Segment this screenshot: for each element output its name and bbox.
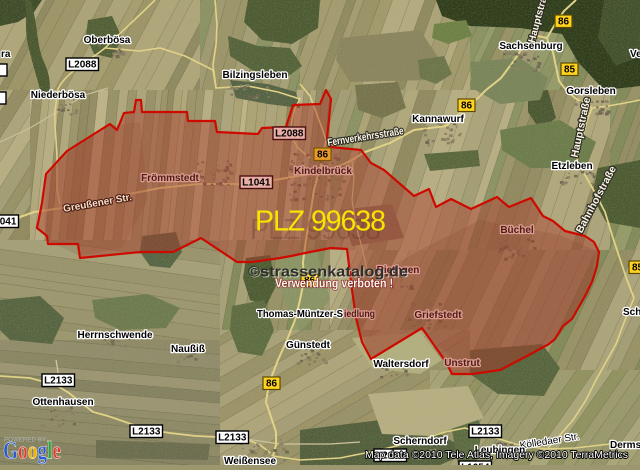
svg-text:Thomas-Müntzer-S: Thomas-Müntzer-S <box>257 309 343 320</box>
svg-text:ra: ra <box>1 49 11 60</box>
svg-text:86: 86 <box>461 101 473 112</box>
svg-text:Büchel: Büchel <box>500 225 534 236</box>
svg-text:Scherndorf: Scherndorf <box>393 436 447 447</box>
svg-text:L2133: L2133 <box>132 427 161 438</box>
svg-text:Unstrut: Unstrut <box>444 358 480 369</box>
svg-text:L2088: L2088 <box>275 129 304 140</box>
svg-text:Bilzingsleben: Bilzingsleben <box>223 70 288 81</box>
svg-text:Ottenhausen: Ottenhausen <box>32 397 93 408</box>
svg-text:86: 86 <box>266 379 278 390</box>
svg-text:Sachsenburg: Sachsenburg <box>499 41 562 52</box>
svg-text:L2133: L2133 <box>471 427 500 438</box>
svg-text:Frömmstedt: Frömmstedt <box>141 173 199 184</box>
svg-text:iedlung: iedlung <box>344 309 375 320</box>
svg-text:86: 86 <box>558 17 570 28</box>
svg-text:Map data ©2010 Tele Atlas, Ima: Map data ©2010 Tele Atlas, Imagery ©2010… <box>365 449 628 461</box>
svg-text:Schloßvippach: Schloßvippach <box>623 307 640 318</box>
svg-text:L1041: L1041 <box>242 178 271 189</box>
svg-text:Verwendung verboten !: Verwendung verboten ! <box>275 277 393 291</box>
svg-text:Waltersdorf: Waltersdorf <box>373 359 429 370</box>
svg-text:Kindelbrück: Kindelbrück <box>294 166 352 177</box>
svg-text:85: 85 <box>632 263 640 274</box>
svg-text:PLZ 99638: PLZ 99638 <box>255 206 386 238</box>
svg-text:Google: Google <box>3 438 61 465</box>
svg-text:L1041: L1041 <box>0 217 17 228</box>
svg-text:L2133: L2133 <box>218 433 247 444</box>
svg-text:86: 86 <box>317 150 329 161</box>
svg-text:Naußiß: Naußiß <box>171 344 205 355</box>
svg-text:Oberbösa: Oberbösa <box>84 35 131 46</box>
svg-text:Herrnschwende: Herrnschwende <box>77 330 152 341</box>
svg-text:Vehra: Vehra <box>630 49 640 60</box>
svg-text:L2133: L2133 <box>44 376 73 387</box>
svg-text:L2088: L2088 <box>68 60 97 71</box>
svg-text:Etzleben: Etzleben <box>551 161 592 172</box>
svg-text:Weißensee: Weißensee <box>224 456 276 465</box>
svg-text:Niederbösa: Niederbösa <box>31 90 86 101</box>
svg-text:Günstedt: Günstedt <box>286 340 331 351</box>
svg-text:85: 85 <box>564 65 576 76</box>
svg-text:Kannawurf: Kannawurf <box>412 114 464 125</box>
svg-text:Griefstedt: Griefstedt <box>414 310 462 321</box>
svg-text:Gorsleben: Gorsleben <box>566 86 615 97</box>
